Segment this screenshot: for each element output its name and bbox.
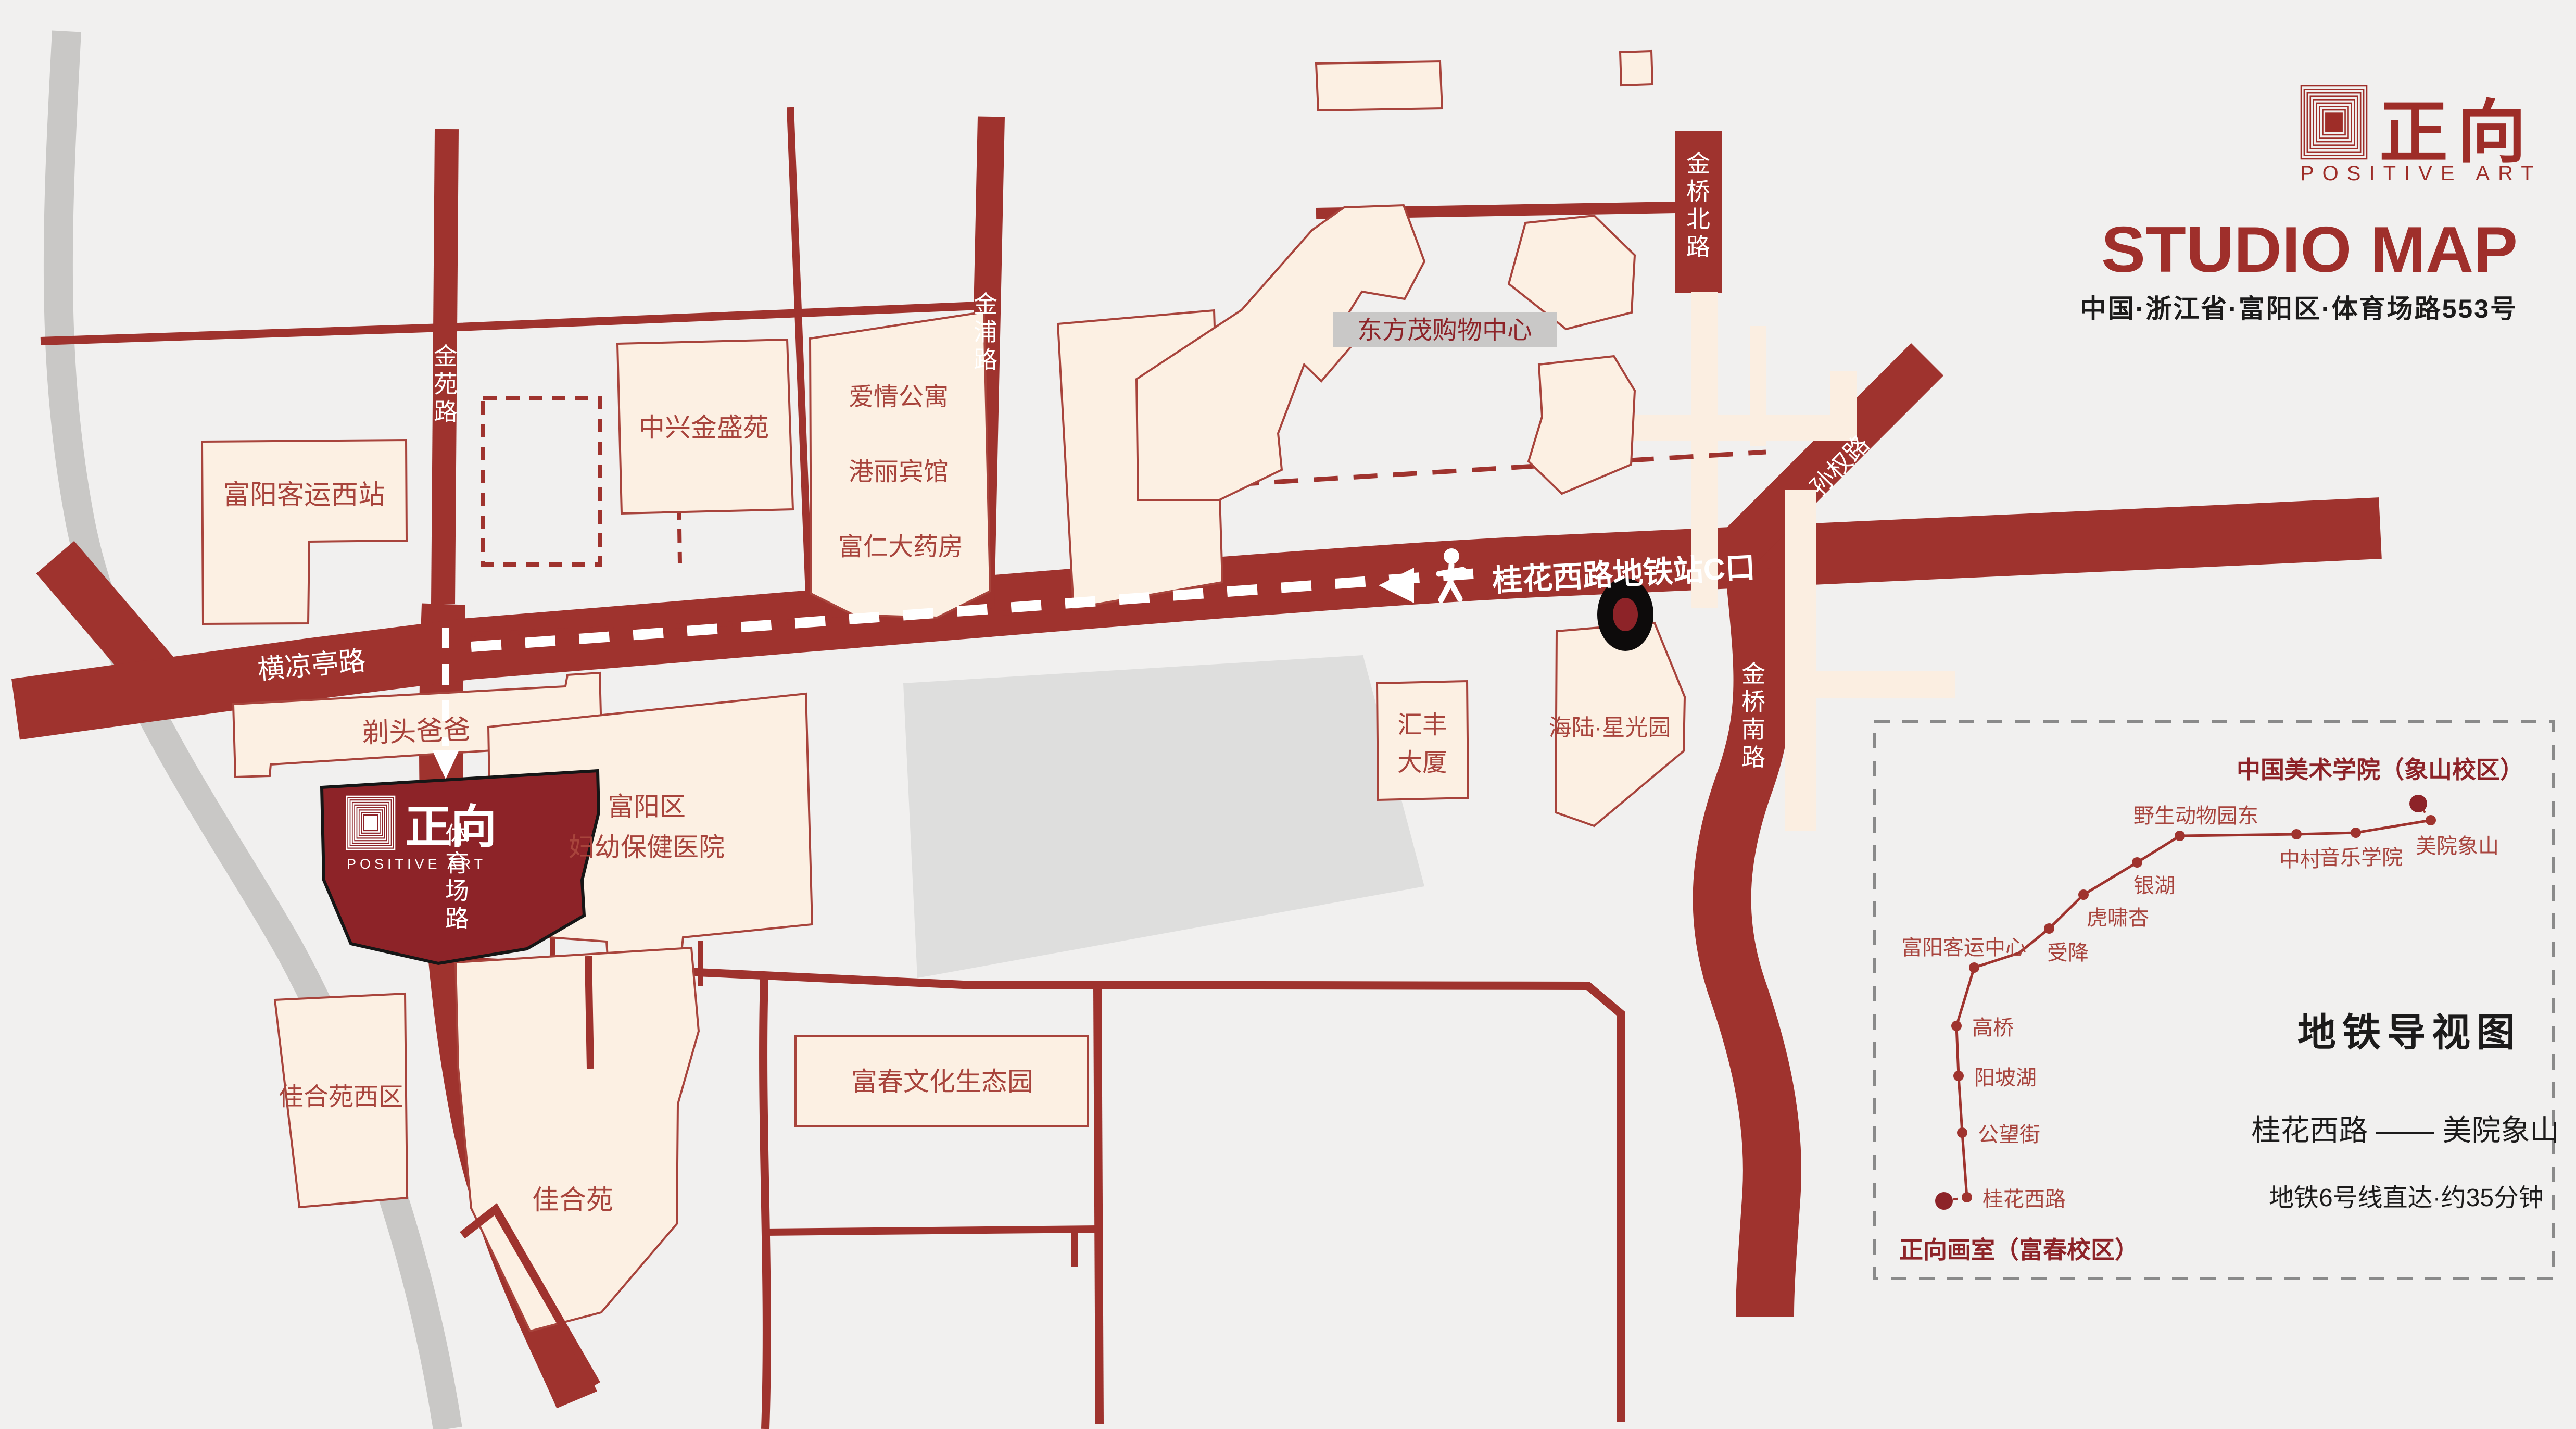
studio-logo-en-map: POSITIVE ART — [347, 856, 486, 872]
metro-start-label: 正向画室（富春校区） — [1899, 1236, 2139, 1263]
metro-station-dot — [2351, 828, 2361, 838]
label-fuyang-west-bus-station: 富阳客运西站 — [223, 480, 385, 510]
brand-logo-icon — [2301, 86, 2367, 159]
road-label-jinqiao-north: 金桥北路 — [1686, 150, 1710, 260]
metro-summary-note: 地铁6号线直达·约35分钟 — [2269, 1184, 2544, 1212]
metro-panel-title: 地铁导视图 — [2297, 1011, 2521, 1054]
label-zhongxing-jinshengyuan: 中兴金盛苑 — [639, 413, 769, 442]
metro-station-label: 受降 — [2047, 942, 2089, 964]
metro-station-label: 公望街 — [1978, 1123, 2040, 1146]
building-small-top — [1316, 61, 1442, 110]
metro-station-label: 中村 — [2279, 848, 2321, 871]
label-gangli-hotel: 港丽宾馆 — [849, 458, 949, 486]
label-dongfangmao-mall: 东方茂购物中心 — [1357, 317, 1532, 344]
studio-address: 中国·浙江省·富阳区·体育场路553号 — [2080, 294, 2518, 323]
metro-station-label: 虎啸杏 — [2087, 907, 2149, 930]
metro-station-dot — [1953, 1071, 1964, 1081]
metro-station-label: 阳坡湖 — [1974, 1067, 2037, 1089]
metro-station-label: 富阳客运中心 — [1901, 936, 2026, 959]
metro-terminal-dot — [1935, 1192, 1953, 1210]
metro-station-dot — [2291, 829, 2302, 839]
brand-logo-zh: 正向 — [2379, 94, 2535, 171]
label-hsbc-line2: 大厦 — [1397, 749, 1447, 776]
building-tiny-top-right — [1620, 51, 1652, 85]
studio-logo-icon-map — [347, 796, 395, 849]
metro-station-dot — [2132, 857, 2142, 868]
map-canvas: 金苑路 金浦路 金桥北路 金桥南路 体育场路 孙权路 横凉亭路 桂花西路地铁站C… — [0, 0, 2576, 1429]
metro-end-label: 中国美术学院（象山校区） — [2237, 756, 2524, 783]
metro-station-label: 野生动物园东 — [2133, 805, 2258, 828]
metro-station-label: 音乐学院 — [2319, 846, 2403, 869]
studio-logo-zh-map: 正向 — [405, 801, 497, 853]
metro-station-dot — [2175, 831, 2185, 841]
label-fuchun-eco-park: 富春文化生态园 — [851, 1067, 1033, 1096]
studio-map-poster: 金苑路 金浦路 金桥北路 金桥南路 体育场路 孙权路 横凉亭路 桂花西路地铁站C… — [0, 0, 2576, 1429]
road-label-jinpu: 金浦路 — [974, 291, 997, 373]
metro-station-dot — [1969, 962, 1979, 973]
road-label-jinqiao-south: 金桥南路 — [1741, 660, 1765, 771]
metro-station-dot — [2044, 923, 2054, 934]
metro-summary-route: 桂花西路 —— 美院象山 — [2251, 1114, 2559, 1147]
label-aiqing-apartment: 爱情公寓 — [849, 383, 949, 411]
label-jiaheyuan: 佳合苑 — [532, 1185, 613, 1215]
brand-logo-en: POSITIVE ART — [2300, 162, 2542, 185]
label-furen-pharmacy: 富仁大药房 — [838, 533, 963, 561]
label-hospital-line2: 妇幼保健医院 — [569, 833, 725, 862]
building-hsbc-tower — [1377, 681, 1468, 800]
metro-station-dot — [1962, 1192, 1972, 1202]
label-titou-baba: 剃头爸爸 — [361, 714, 471, 748]
metro-station-label: 高桥 — [1972, 1017, 2014, 1039]
metro-station-dot — [1957, 1127, 1967, 1138]
metro-station-label: 银湖 — [2133, 874, 2175, 897]
metro-station-dot — [2426, 815, 2436, 825]
road-label-jinyuan: 金苑路 — [434, 343, 458, 425]
metro-station-label: 桂花西路 — [1982, 1188, 2066, 1211]
page-title: STUDIO MAP — [2101, 214, 2518, 286]
metro-station-dot — [1951, 1021, 1962, 1031]
label-hsbc-line1: 汇丰 — [1397, 711, 1447, 739]
metro-station-dot — [2078, 889, 2089, 900]
label-hospital-line1: 富阳区 — [608, 792, 686, 821]
label-hailu-xingguangyuan: 海陆·星光园 — [1549, 715, 1671, 741]
label-jiaheyuan-west: 佳合苑西区 — [279, 1083, 403, 1111]
metro-terminal-dot — [2409, 795, 2427, 812]
metro-station-label: 美院象山 — [2416, 835, 2499, 858]
